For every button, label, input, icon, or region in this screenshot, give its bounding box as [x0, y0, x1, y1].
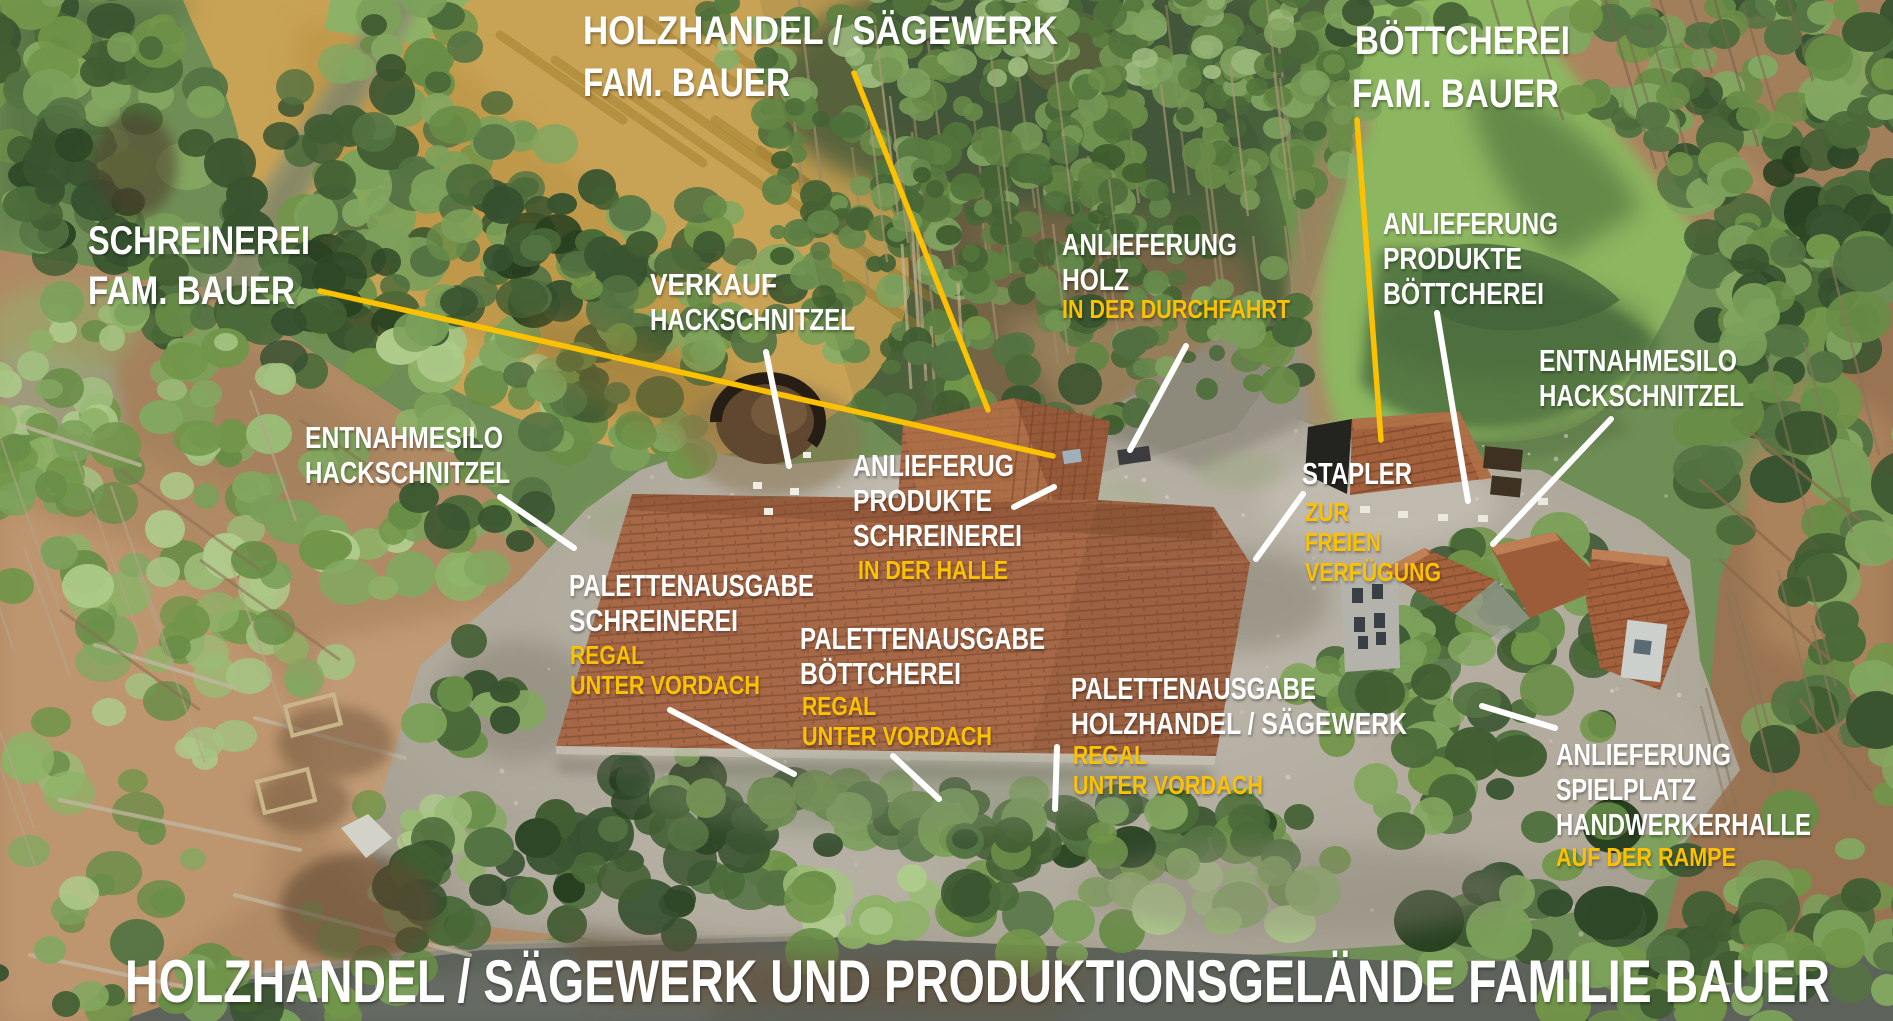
svg-text:FREIEN: FREIEN: [1305, 527, 1381, 557]
svg-text:HOLZHANDEL / SÄGEWERK: HOLZHANDEL / SÄGEWERK: [1071, 706, 1407, 741]
svg-text:REGAL: REGAL: [570, 640, 644, 670]
svg-text:ANLIEFERUG: ANLIEFERUG: [853, 448, 1014, 483]
svg-text:PRODUKTE: PRODUKTE: [853, 483, 992, 518]
svg-text:HACKSCHNITZEL: HACKSCHNITZEL: [305, 455, 510, 490]
svg-text:HOLZHANDEL / SÄGEWERK: HOLZHANDEL / SÄGEWERK: [583, 9, 1058, 53]
svg-text:ANLIEFERUNG: ANLIEFERUNG: [1062, 227, 1237, 262]
svg-text:UNTER VORDACH: UNTER VORDACH: [570, 670, 760, 700]
svg-text:HANDWERKERHALLE: HANDWERKERHALLE: [1556, 807, 1811, 842]
svg-text:REGAL: REGAL: [802, 691, 876, 721]
svg-text:BÖTTCHEREI: BÖTTCHEREI: [800, 656, 961, 691]
svg-text:ANLIEFERUNG: ANLIEFERUNG: [1556, 737, 1731, 772]
svg-text:ZUR: ZUR: [1305, 497, 1349, 527]
svg-text:SCHREINEREI: SCHREINEREI: [853, 518, 1022, 553]
svg-text:IN DER HALLE: IN DER HALLE: [858, 555, 1008, 585]
svg-text:HACKSCHNITZEL: HACKSCHNITZEL: [650, 302, 855, 337]
svg-text:PALETTENAUSGABE: PALETTENAUSGABE: [569, 568, 814, 603]
svg-text:BÖTTCHEREI: BÖTTCHEREI: [1383, 276, 1544, 311]
svg-text:FAM. BAUER: FAM. BAUER: [88, 269, 295, 313]
svg-text:VERFÜGUNG: VERFÜGUNG: [1305, 557, 1441, 587]
svg-text:SPIELPLATZ: SPIELPLATZ: [1556, 772, 1696, 807]
svg-text:HOLZHANDEL / SÄGEWERK UND PROD: HOLZHANDEL / SÄGEWERK UND PRODUKTIONSGEL…: [125, 948, 1830, 1015]
svg-text:ENTNAHMESILO: ENTNAHMESILO: [1539, 343, 1737, 378]
svg-text:AUF DER RAMPE: AUF DER RAMPE: [1556, 842, 1736, 872]
svg-text:UNTER VORDACH: UNTER VORDACH: [802, 721, 992, 751]
svg-text:UNTER VORDACH: UNTER VORDACH: [1073, 770, 1263, 800]
svg-text:PRODUKTE: PRODUKTE: [1383, 241, 1522, 276]
svg-text:BÖTTCHEREI: BÖTTCHEREI: [1355, 18, 1570, 63]
svg-text:STAPLER: STAPLER: [1302, 456, 1412, 491]
svg-text:SCHREINEREI: SCHREINEREI: [569, 603, 738, 638]
svg-text:HACKSCHNITZEL: HACKSCHNITZEL: [1539, 378, 1744, 413]
svg-text:ANLIEFERUNG: ANLIEFERUNG: [1383, 206, 1558, 241]
svg-text:REGAL: REGAL: [1073, 740, 1147, 770]
svg-text:ENTNAHMESILO: ENTNAHMESILO: [305, 420, 503, 455]
svg-text:HOLZ: HOLZ: [1062, 262, 1129, 297]
svg-text:FAM. BAUER: FAM. BAUER: [1352, 72, 1559, 116]
svg-text:IN DER DURCHFAHRT: IN DER DURCHFAHRT: [1062, 294, 1290, 324]
svg-text:SCHREINEREI: SCHREINEREI: [88, 219, 310, 263]
svg-text:PALETTENAUSGABE: PALETTENAUSGABE: [1071, 671, 1316, 706]
svg-text:VERKAUF: VERKAUF: [650, 267, 777, 302]
svg-text:FAM. BAUER: FAM. BAUER: [583, 61, 790, 105]
svg-text:PALETTENAUSGABE: PALETTENAUSGABE: [800, 621, 1045, 656]
